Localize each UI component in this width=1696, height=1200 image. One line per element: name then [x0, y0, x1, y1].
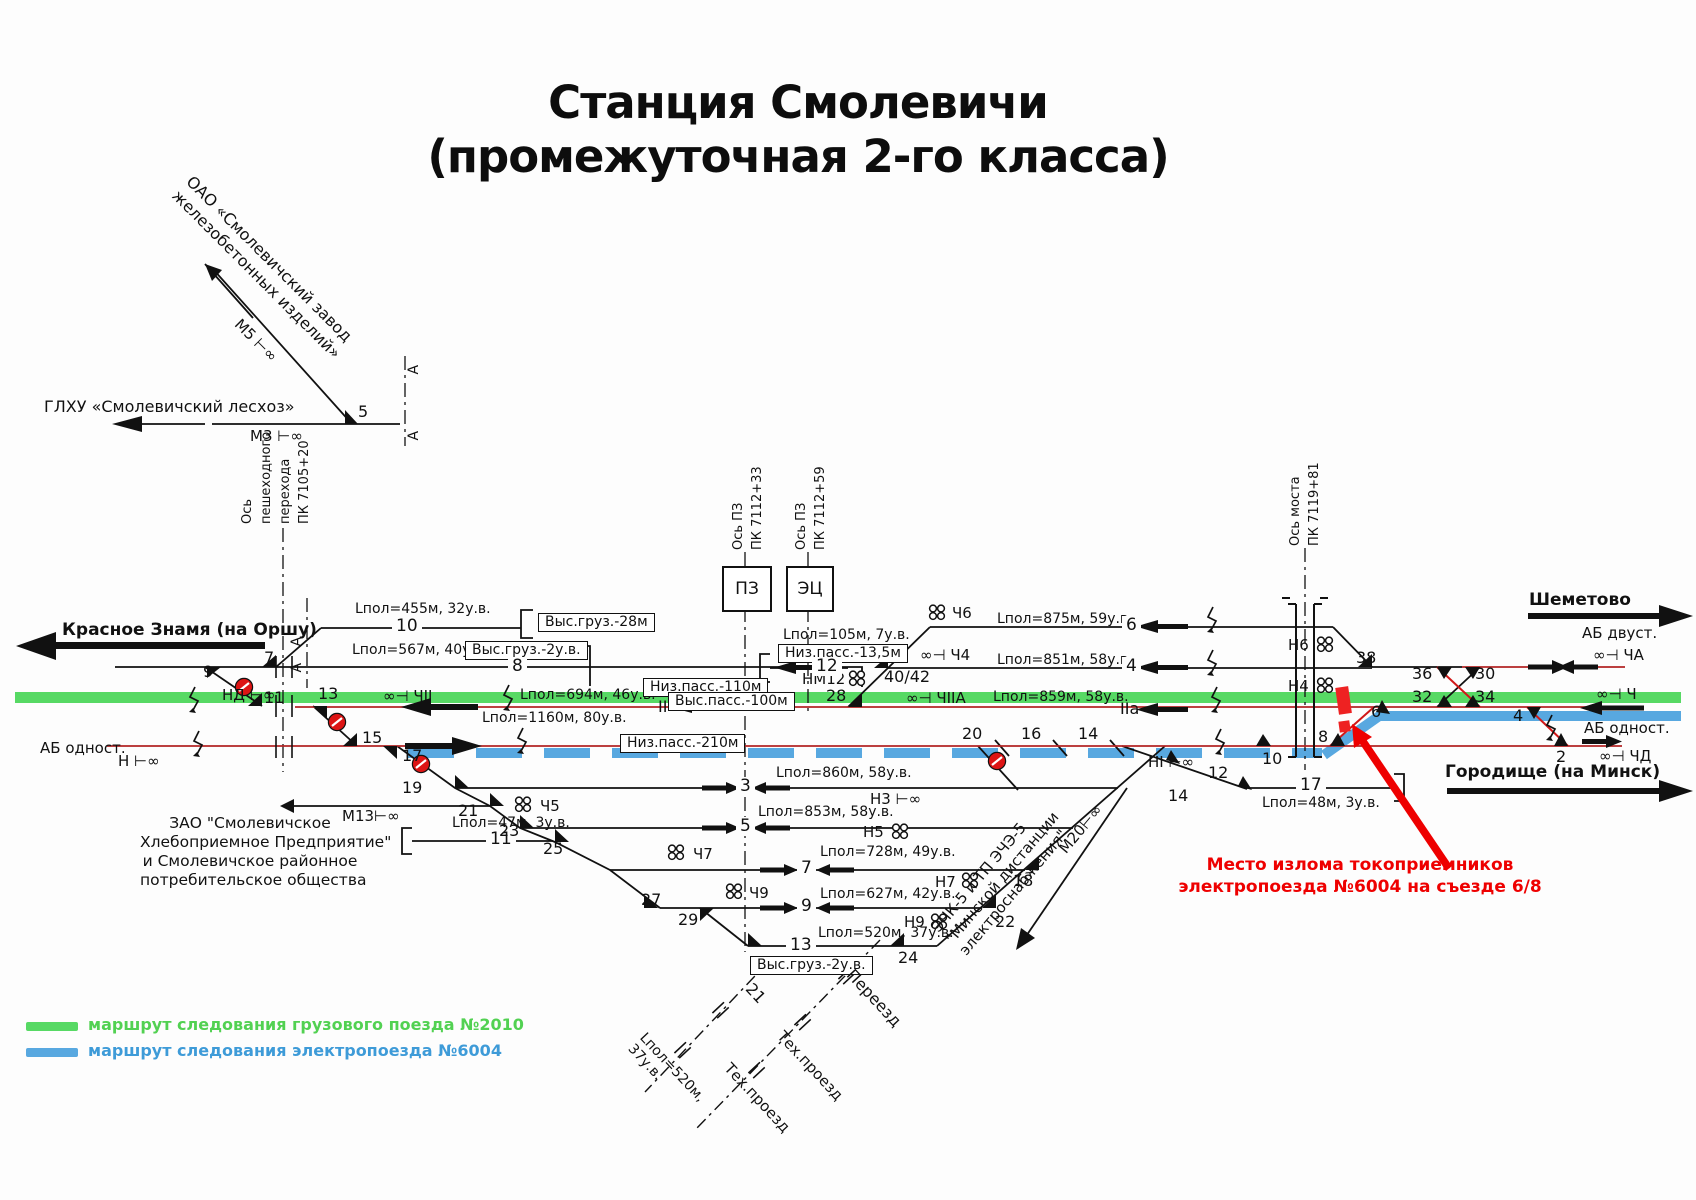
axis-pz1-label: Ось ПЗ ПК 7112+33 — [729, 440, 767, 550]
axis-pz2-l1: Ось ПЗ — [792, 440, 811, 550]
track-6-number: 6 — [1122, 616, 1141, 635]
signal-ch2: ∞⊣ ЧII — [383, 688, 432, 705]
ab-odnost-east-label: АБ одност. — [1584, 720, 1670, 737]
a-mark-2: А — [407, 431, 422, 441]
track-9-number: 9 — [797, 897, 816, 916]
spec-main1: Lпол=1160м, 80у.в. — [482, 711, 627, 726]
point-6: 6 — [1371, 703, 1381, 721]
track-II-number: II — [658, 698, 667, 716]
spec-track5: Lпол=853м, 58у.в. — [758, 805, 894, 820]
axis-bridge-l1: Ось моста — [1286, 434, 1305, 546]
annotation-line2: электропоезда №6004 на съезде 6/8 — [1175, 878, 1545, 897]
track-13-number: 13 — [786, 936, 816, 955]
ab-odnost-west-label: АБ одност. — [40, 740, 126, 757]
platform-vp100-box: Выс.пасс.-100м — [668, 692, 795, 711]
point-19: 19 — [402, 779, 422, 797]
point-14: 14 — [1078, 725, 1098, 743]
axis-ped-l3: перехода — [276, 412, 295, 524]
signal-chd: ∞⊣ ЧД — [1599, 748, 1651, 765]
signal-n6: Н6 — [1288, 637, 1309, 654]
legend-freight-swatch — [26, 1022, 78, 1031]
enterprise-l3: и Смолевичское районное — [140, 852, 360, 871]
axis-pz1-l1: Ось ПЗ — [729, 440, 748, 550]
a-mark-1: А — [407, 365, 422, 375]
spec-track7: Lпол=728м, 49у.в. — [820, 845, 956, 860]
track-4-number: 4 — [1122, 657, 1141, 676]
enterprise-l1: ЗАО "Смолевичское — [140, 814, 360, 833]
spec-track3: Lпол=860м, 58у.в. — [776, 766, 912, 781]
a-mark-4: А — [290, 663, 305, 673]
point-28: 28 — [826, 687, 846, 705]
track-3-number: 3 — [736, 777, 755, 796]
road-crossing-ticks — [674, 968, 854, 1078]
ec-post-box: ЭЦ — [786, 566, 834, 612]
point-11: 11 — [264, 689, 284, 707]
track-IIa-number: IIа — [1120, 700, 1139, 718]
signal-cha: ∞⊣ ЧА — [1593, 647, 1644, 664]
point-32: 32 — [1412, 688, 1432, 706]
point-25: 25 — [543, 840, 563, 858]
axis-bridge-l2: ПК 7119+81 — [1305, 434, 1324, 546]
signal-ch9: Ч9 — [749, 885, 769, 902]
axis-pz1-l2: ПК 7112+33 — [748, 440, 767, 550]
signal-ch2a: ∞⊣ ЧIIА — [906, 690, 966, 707]
point-34: 34 — [1475, 688, 1495, 706]
platform-np135-box: Низ.пасс.-13,5м — [778, 644, 908, 663]
point-23: 23 — [499, 822, 519, 840]
axis-ped-l2: пешеходного — [257, 412, 276, 524]
point-16: 16 — [1021, 725, 1041, 743]
enterprise-l4: потребительское общества — [140, 871, 360, 890]
page-title-line2: (промежуточная 2-го класса) — [348, 130, 1248, 183]
pz-post-box: ПЗ — [722, 566, 772, 612]
point-29: 29 — [678, 911, 698, 929]
point-9: 9 — [203, 663, 213, 681]
legend-electric-swatch — [26, 1048, 78, 1057]
track-8-number: 8 — [508, 657, 527, 676]
page-title-line1: Станция Смолевичи — [348, 76, 1248, 129]
crossover-40-42-label: 40/42 — [884, 668, 930, 686]
track-17-number: 17 — [1296, 776, 1326, 795]
axis-ped-l4: ПК 7105+20 — [295, 412, 314, 524]
point-14b: 14 — [1168, 787, 1188, 805]
point-24: 24 — [898, 949, 918, 967]
platform-vg28-box: Выс.груз.-28м — [538, 613, 655, 632]
axis-pz2-l2: ПК 7112+59 — [811, 440, 830, 550]
track-5-number: 5 — [736, 817, 755, 836]
point-10: 10 — [1262, 750, 1282, 768]
signal-ch7: Ч7 — [693, 846, 713, 863]
spec-track10: Lпол=455м, 32у.в. — [355, 602, 491, 617]
point-38: 38 — [1356, 649, 1376, 667]
point-12: 12 — [1208, 764, 1228, 782]
point-5: 5 — [358, 403, 368, 421]
signal-n: Н ⊢∞ — [118, 753, 160, 770]
point-21: 21 — [458, 802, 478, 820]
station-schematic: Станция Смолевичи (промежуточная 2-го кл… — [0, 0, 1696, 1200]
platform-np210-box: Низ.пасс.-210м — [620, 734, 745, 753]
point-13: 13 — [318, 685, 338, 703]
enterprise-label: ЗАО "Смолевичское Хлебоприемное Предприя… — [140, 814, 360, 890]
spec-track12: Lпол=105м, 7у.в. — [783, 628, 910, 643]
signal-n5: Н5 — [863, 824, 884, 841]
axis-bridge-label: Ось моста ПК 7119+81 — [1286, 434, 1324, 546]
point-15: 15 — [362, 729, 382, 747]
signal-ch6: Ч6 — [952, 605, 972, 622]
point-8: 8 — [1318, 728, 1328, 746]
spec-track4: Lпол=851м, 58у.в. — [997, 653, 1133, 668]
point-20: 20 — [962, 725, 982, 743]
track-7-number: 7 — [797, 859, 816, 878]
dest-east-top: Шеметово — [1529, 591, 1631, 610]
legend-electric-label: маршрут следования электропоезда №6004 — [88, 1042, 502, 1060]
dest-west: Красное Знамя (на Оршу) — [62, 621, 317, 640]
legend-freight-label: маршрут следования грузового поезда №201… — [88, 1016, 524, 1034]
track-10-number: 10 — [392, 617, 422, 636]
axis-pz2-label: Ось ПЗ ПК 7112+59 — [792, 440, 830, 550]
ab-dvust-label: АБ двуст. — [1582, 625, 1657, 642]
point-36: 36 — [1412, 665, 1432, 683]
signal-ni: НІ ⊢∞ — [1148, 754, 1194, 771]
axis-ped-l1: Ось — [238, 412, 257, 524]
axis-pedestrian-label: Ось пешеходного перехода ПК 7105+20 — [238, 412, 314, 524]
spec-track2a: Lпол=859м, 58у.в. — [993, 690, 1129, 705]
signal-ch5: Ч5 — [540, 798, 560, 815]
signal-ch4: ∞⊣ Ч4 — [920, 647, 970, 664]
spec-main2: Lпол=694м, 46у.в. — [520, 688, 656, 703]
point-27: 27 — [641, 891, 661, 909]
signal-ch: ∞⊣ Ч — [1596, 686, 1637, 703]
signal-n4: Н4 — [1288, 678, 1309, 695]
point-2: 2 — [1556, 748, 1566, 766]
spec-track17: Lпол=48м, 3у.в. — [1262, 796, 1380, 811]
enterprise-l2: Хлебоприемное Предприятие" — [140, 833, 360, 852]
point-4: 4 — [1513, 707, 1523, 725]
track-lines-red — [107, 667, 1625, 746]
annotation-line1: Место излома токоприемников — [1185, 856, 1535, 875]
track-12-number: 12 — [812, 657, 842, 676]
spec-track6: Lпол=875м, 59у.в. — [997, 612, 1133, 627]
point-7: 7 — [264, 649, 274, 667]
point-17: 17 — [402, 747, 422, 765]
spec-track9: Lпол=627м, 42у.в. — [820, 887, 956, 902]
dest-east-bottom: Городище (на Минск) — [1445, 763, 1660, 782]
point-30: 30 — [1475, 665, 1495, 683]
